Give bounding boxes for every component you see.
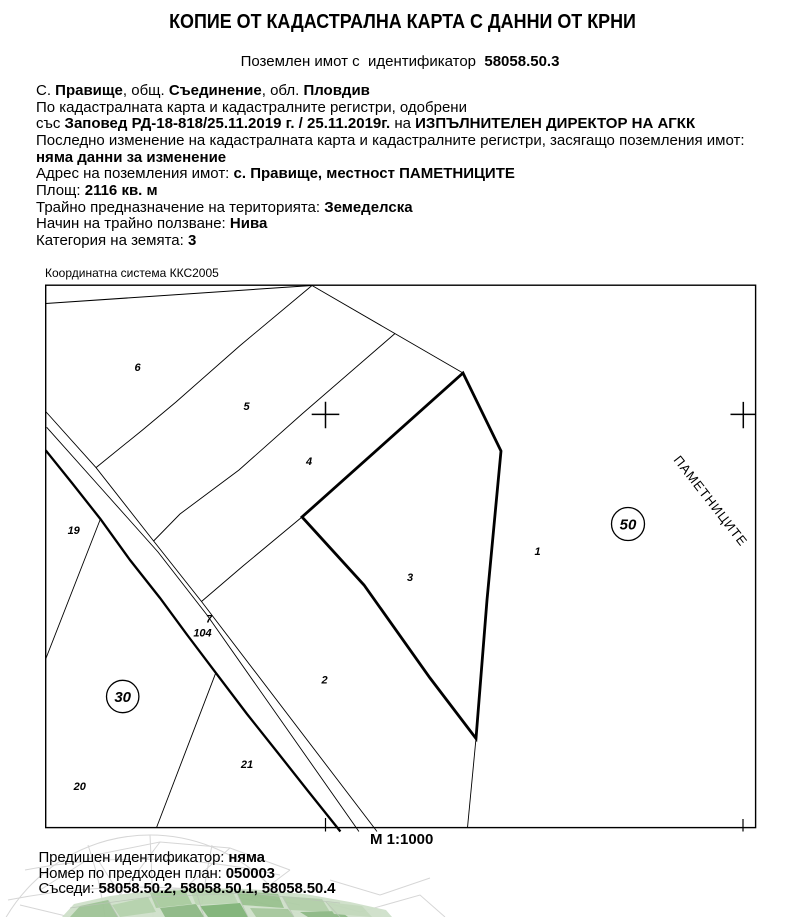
svg-text:21: 21 — [240, 759, 253, 771]
svg-text:20: 20 — [73, 781, 87, 793]
svg-text:3: 3 — [407, 572, 413, 584]
svg-text:5: 5 — [243, 401, 250, 413]
svg-text:19: 19 — [68, 525, 81, 537]
svg-text:6: 6 — [134, 362, 141, 374]
svg-text:104: 104 — [193, 628, 211, 640]
svg-text:1: 1 — [534, 546, 540, 558]
svg-text:30: 30 — [114, 689, 131, 706]
svg-text:4: 4 — [305, 456, 312, 468]
svg-text:2: 2 — [320, 675, 327, 687]
svg-text:ПАМЕТНИЦИТЕ: ПАМЕТНИЦИТЕ — [671, 453, 751, 550]
svg-text:50: 50 — [620, 517, 637, 534]
svg-text:7: 7 — [206, 614, 213, 626]
